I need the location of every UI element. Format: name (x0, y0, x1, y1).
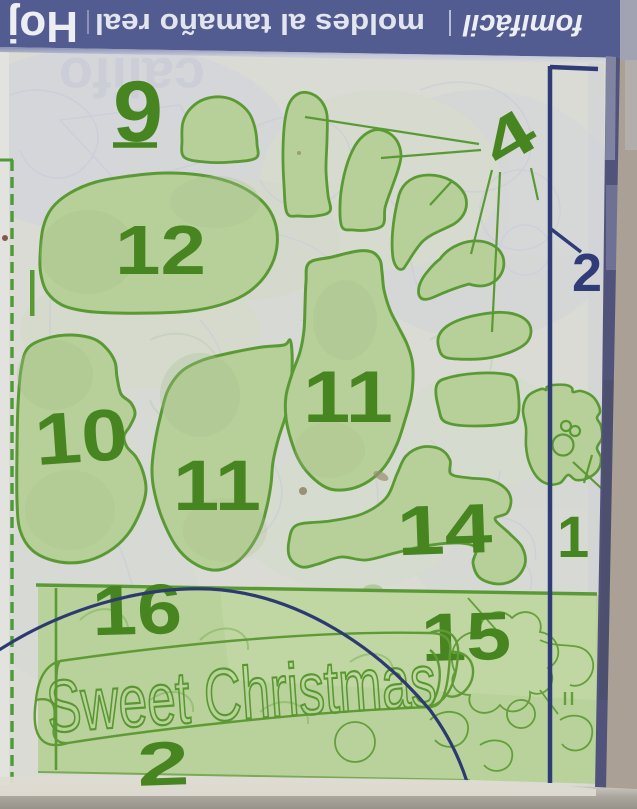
svg-text:fomifácil: fomifácil (462, 8, 583, 41)
svg-text:11: 11 (303, 357, 393, 438)
svg-text:2: 2 (572, 243, 602, 303)
svg-text:11: 11 (173, 447, 261, 526)
svg-text:12: 12 (115, 211, 206, 289)
svg-text:10: 10 (32, 394, 130, 481)
svg-text:2: 2 (136, 729, 190, 800)
svg-text:moldes al tamaño real: moldes al tamaño real (95, 7, 425, 39)
svg-text:14: 14 (396, 489, 494, 570)
svg-text:1: 1 (557, 505, 589, 570)
svg-text:Hoj: Hoj (7, 2, 78, 51)
svg-text:16: 16 (91, 570, 183, 651)
